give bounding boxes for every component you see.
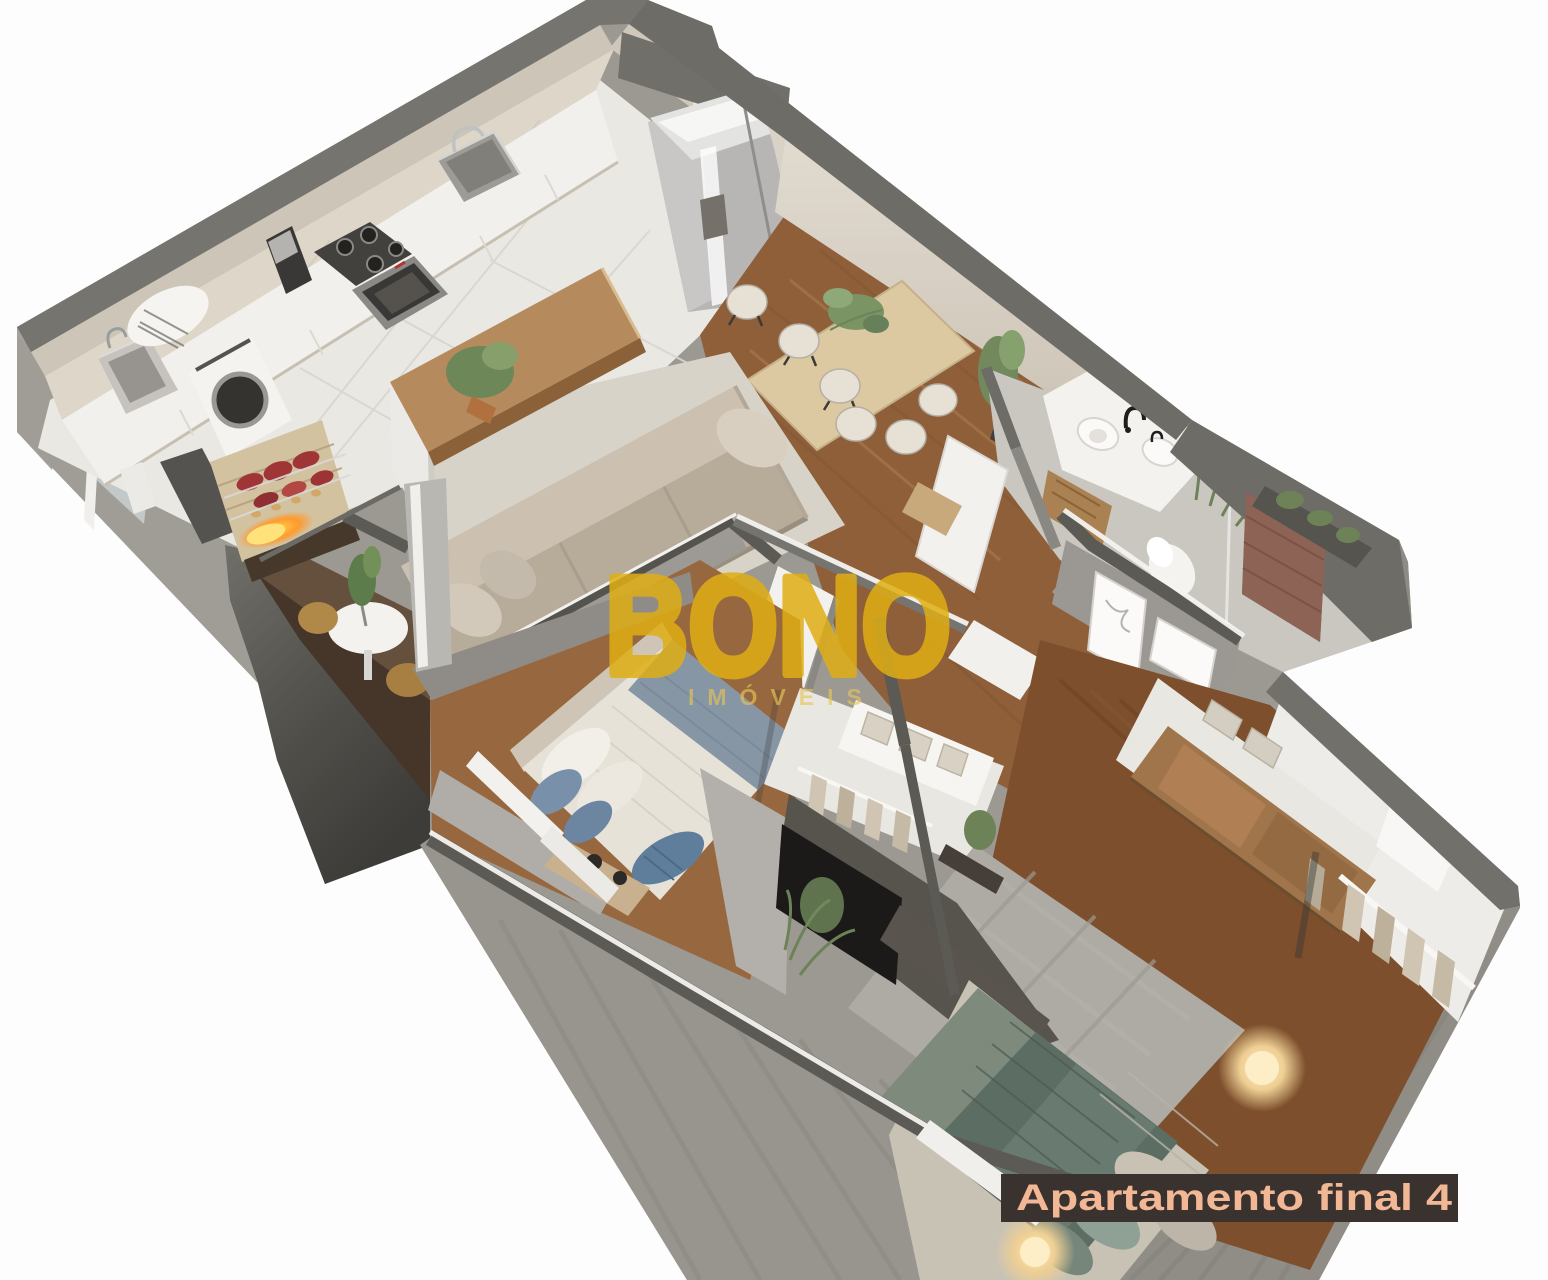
svg-text:IMÓVEIS: IMÓVEIS bbox=[688, 683, 875, 710]
svg-text:Apartamento final 4: Apartamento final 4 bbox=[1016, 1177, 1453, 1218]
svg-text:BONO: BONO bbox=[605, 547, 951, 704]
